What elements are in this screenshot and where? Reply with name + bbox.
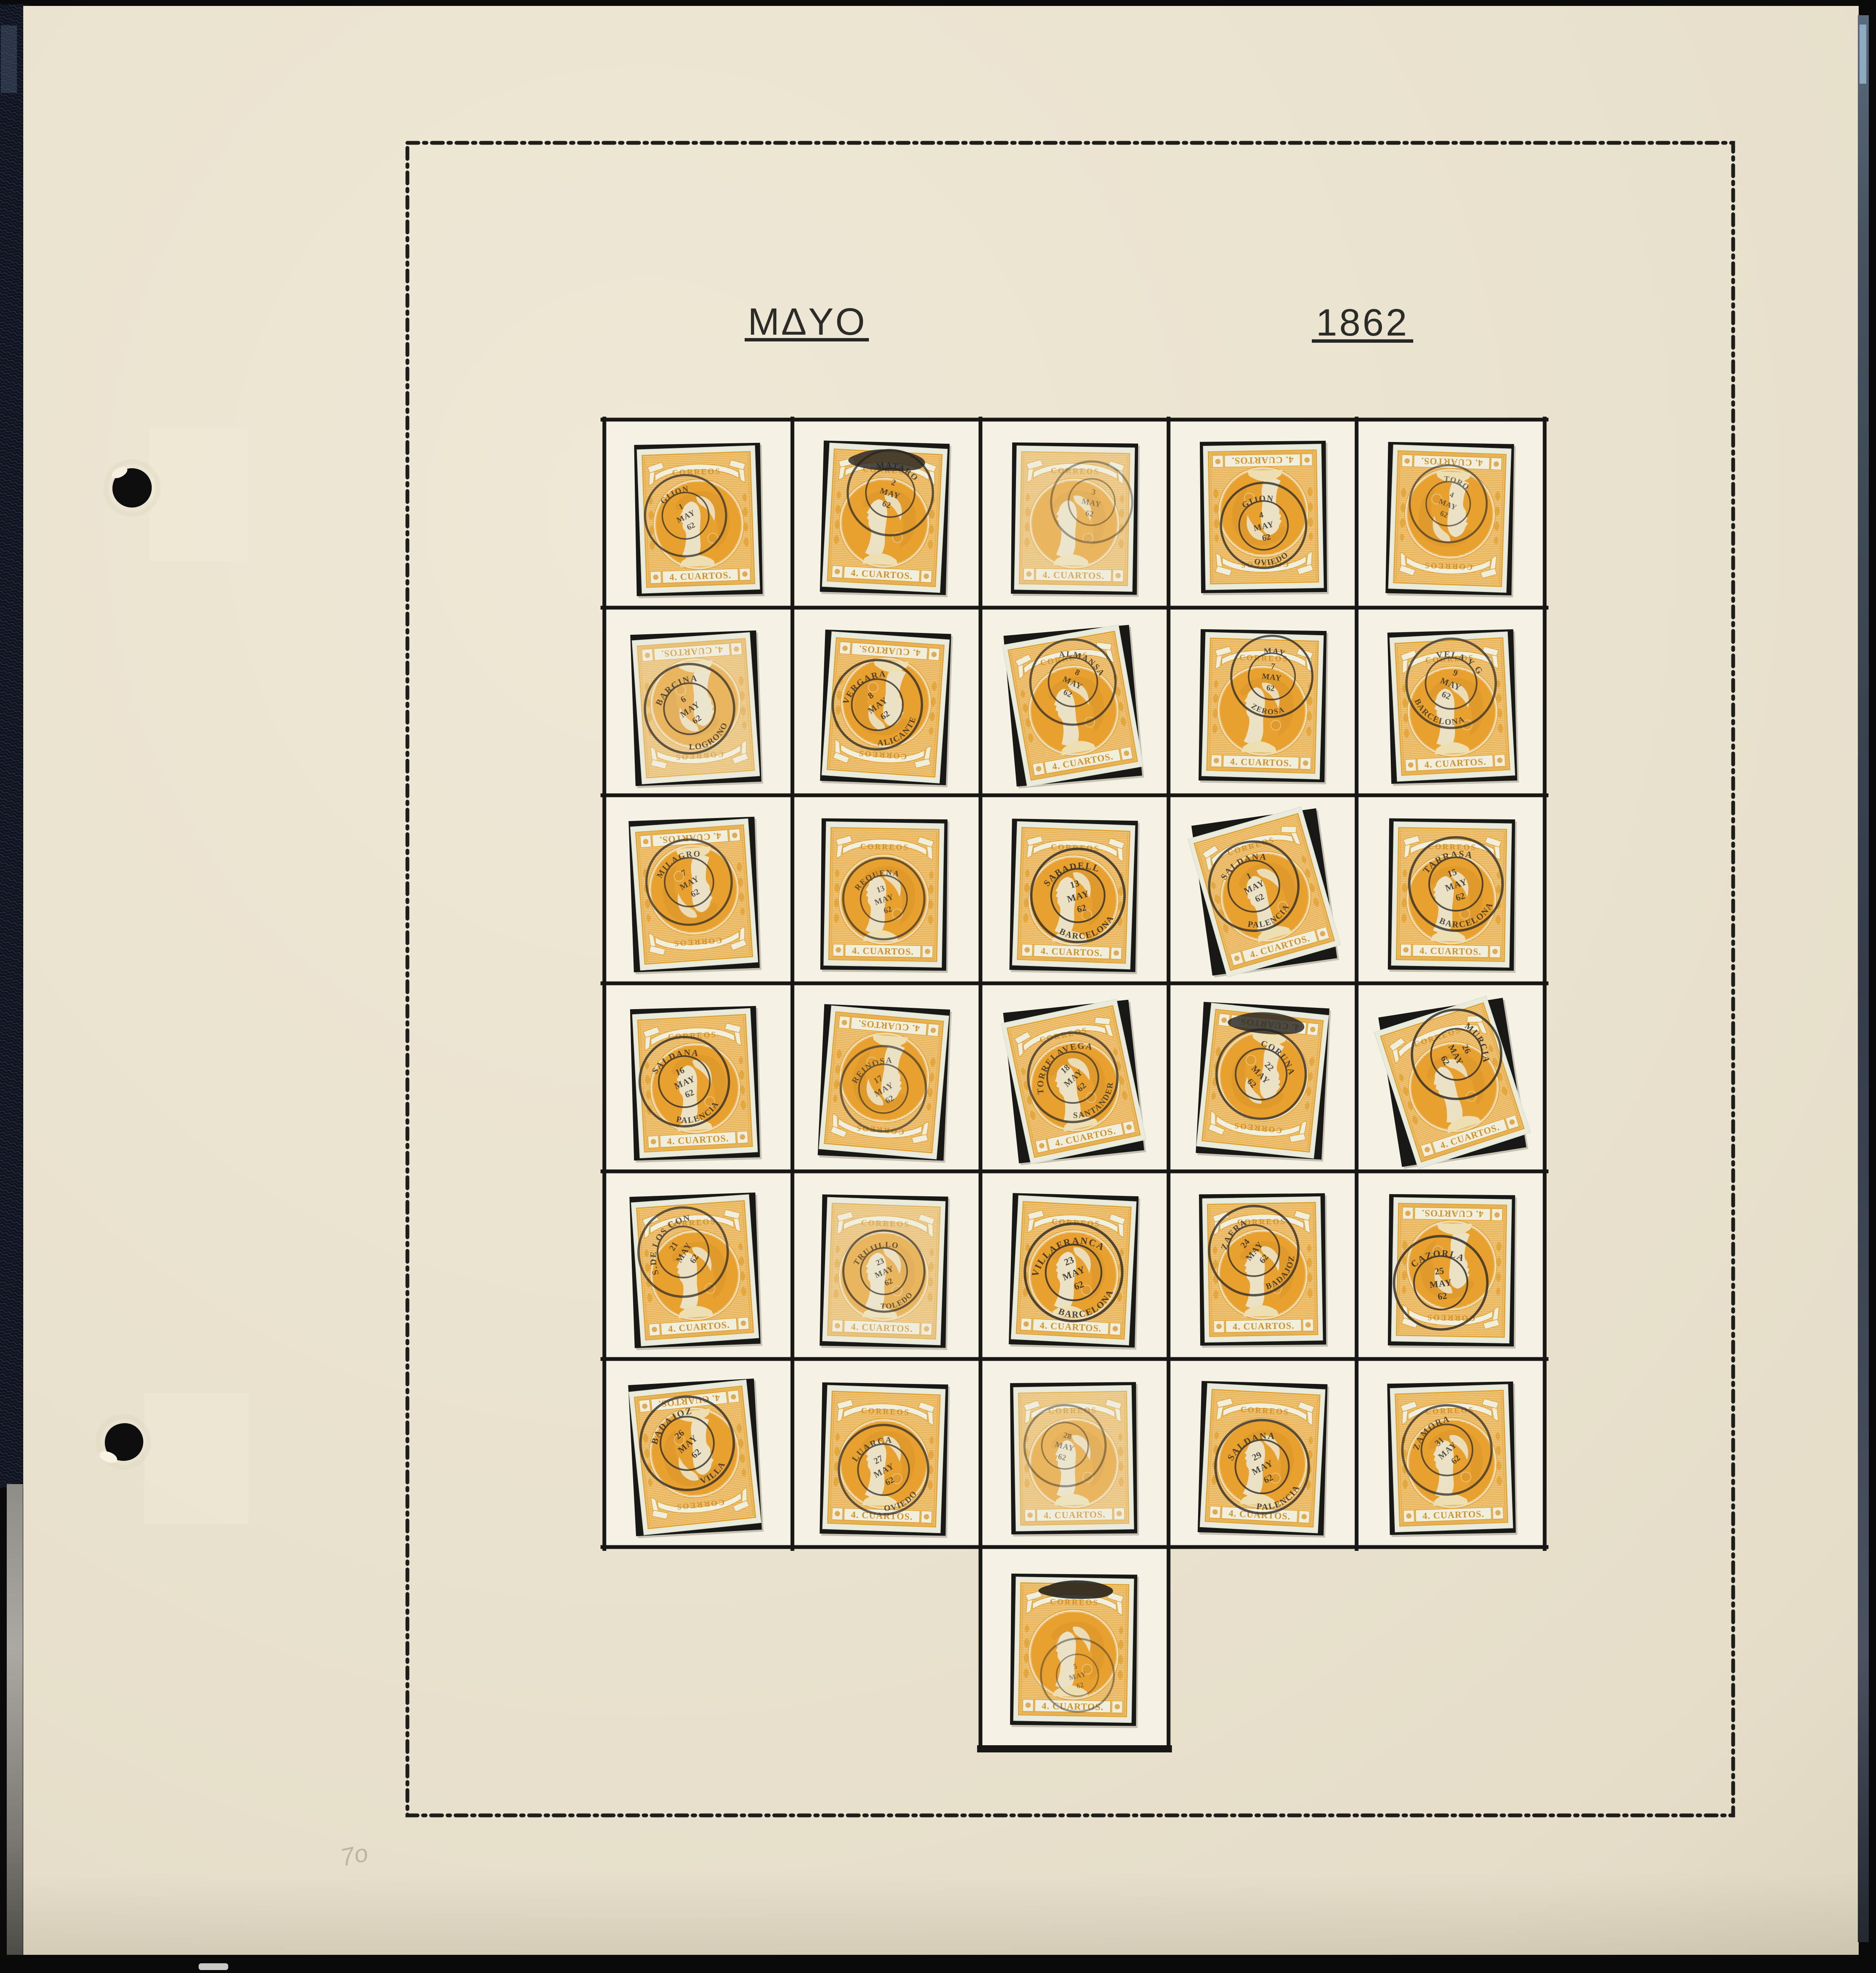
svg-text:62: 62 xyxy=(1084,509,1094,519)
svg-text:MΔYO: MΔYO xyxy=(748,301,866,343)
svg-text:25: 25 xyxy=(1434,1266,1445,1277)
svg-text:1862: 1862 xyxy=(1316,302,1409,344)
svg-text:62: 62 xyxy=(1437,1291,1448,1302)
svg-text:62: 62 xyxy=(1266,683,1275,693)
svg-text:7o: 7o xyxy=(338,1839,371,1872)
